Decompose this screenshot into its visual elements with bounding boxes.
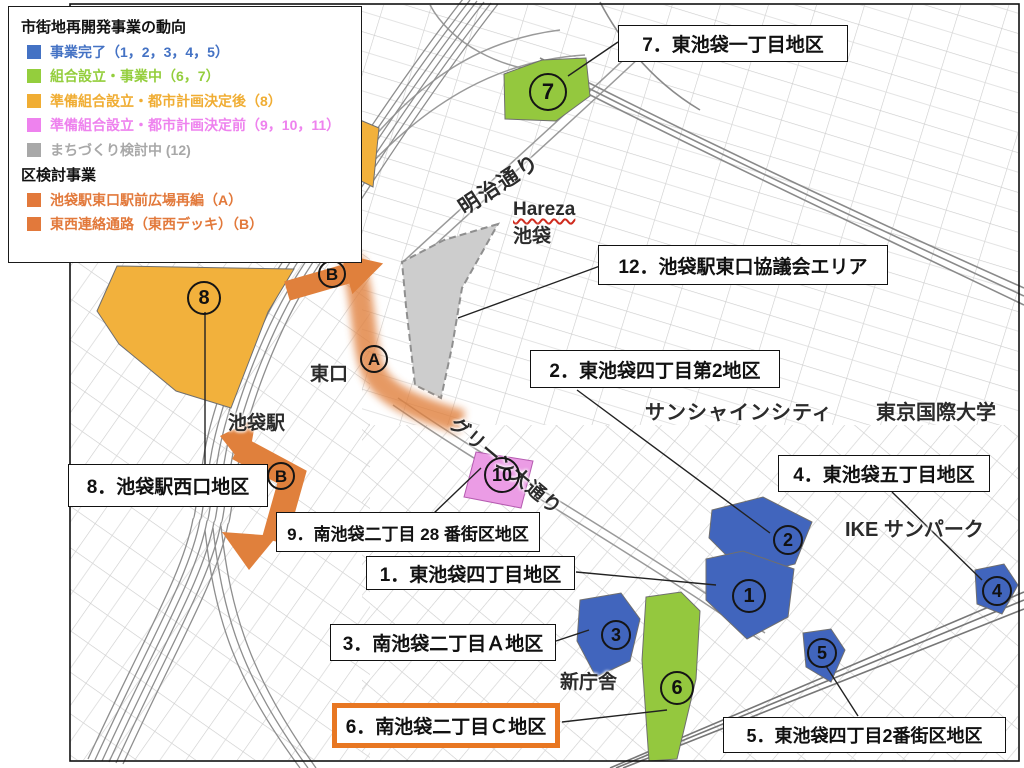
callout-area-8: 8．池袋駅西口地区	[68, 464, 268, 507]
legend-item-prep-after: 準備組合設立・都市計画決定後（8）	[21, 91, 349, 111]
legend-item-prep-before: 準備組合設立・都市計画決定前（9，10，11）	[21, 115, 349, 135]
callout-area-5: 5．東池袋四丁目2番街区地区	[723, 717, 1006, 753]
place-label-tokyo-intl-univ: 東京国際大学	[876, 396, 996, 425]
plaza-swatch-icon	[27, 193, 41, 207]
legend-item-label: 池袋駅東口駅前広場再編（A）	[50, 190, 242, 210]
legend-item-plaza: 池袋駅東口駅前広場再編（A）	[21, 190, 349, 210]
place-label-hareza: Hareza	[513, 199, 575, 221]
callout-area-1: 1．東池袋四丁目地区	[366, 556, 575, 590]
place-label-new-city-hall: 新庁舎	[560, 667, 617, 694]
marker-area-5: 5	[807, 638, 837, 668]
prep-before-swatch-icon	[27, 118, 41, 132]
place-label-sunshine-city: サンシャインシティ	[645, 396, 833, 425]
legend-panel: 市街地再開発事業の動向 事業完了（1，2，3，4，5） 組合設立・事業中（6，7…	[8, 6, 362, 263]
callout-area-7: 7．東池袋一丁目地区	[618, 25, 848, 62]
marker-area-10: 10	[484, 457, 520, 493]
legend-item-study: まちづくり検討中 (12)	[21, 140, 349, 160]
marker-area-3: 3	[601, 620, 631, 650]
legend-item-association: 組合設立・事業中（6，7）	[21, 66, 349, 86]
callout-area-12: 12．池袋駅東口協議会エリア	[598, 245, 888, 285]
marker-plaza-a: A	[360, 345, 388, 373]
callout-area-3: 3．南池袋二丁目Ａ地区	[330, 624, 556, 661]
redevelopment-map-page: 市街地再開発事業の動向 事業完了（1，2，3，4，5） 組合設立・事業中（6，7…	[0, 0, 1024, 768]
marker-deck-b-lower: B	[267, 462, 295, 490]
legend-item-label: まちづくり検討中 (12)	[50, 140, 191, 160]
marker-deck-b-upper: B	[318, 260, 346, 288]
legend-subtitle: 区検討事業	[21, 164, 349, 185]
place-label-east-exit: 東口	[310, 359, 348, 386]
association-swatch-icon	[27, 69, 41, 83]
study-swatch-icon	[27, 143, 41, 157]
marker-area-1: 1	[732, 579, 766, 613]
legend-item-label: 事業完了（1，2，3，4，5）	[50, 42, 229, 62]
completed-swatch-icon	[27, 45, 41, 59]
callout-area-6-highlighted: 6．南池袋二丁目Ｃ地区	[332, 703, 560, 748]
legend-item-label: 準備組合設立・都市計画決定後（8）	[50, 91, 282, 111]
marker-area-7: 7	[529, 73, 567, 111]
place-label-ike-sunpark: IKE サンパーク	[845, 513, 984, 542]
marker-area-8: 8	[187, 281, 221, 315]
legend-title: 市街地再開発事業の動向	[21, 16, 349, 37]
legend-item-label: 組合設立・事業中（6，7）	[50, 66, 220, 86]
place-label-ikebukuro-station: 池袋駅	[228, 408, 285, 435]
callout-area-2: 2．東池袋四丁目第2地区	[530, 350, 780, 388]
marker-area-6: 6	[660, 671, 694, 705]
callout-area-4: 4．東池袋五丁目地区	[778, 455, 990, 492]
legend-item-completed: 事業完了（1，2，3，4，5）	[21, 42, 349, 62]
legend-item-label: 準備組合設立・都市計画決定前（9，10，11）	[50, 115, 340, 135]
legend-item-deck: 東西連絡通路（東西デッキ）（B）	[21, 214, 349, 234]
callout-area-9: 9．南池袋二丁目 28 番街区地区	[276, 512, 540, 552]
legend-item-label: 東西連絡通路（東西デッキ）（B）	[50, 214, 263, 234]
marker-area-2: 2	[773, 525, 803, 555]
place-label-hareza-ikebukuro: 池袋	[513, 221, 551, 248]
deck-swatch-icon	[27, 217, 41, 231]
prep-after-swatch-icon	[27, 94, 41, 108]
marker-area-4: 4	[982, 576, 1012, 606]
